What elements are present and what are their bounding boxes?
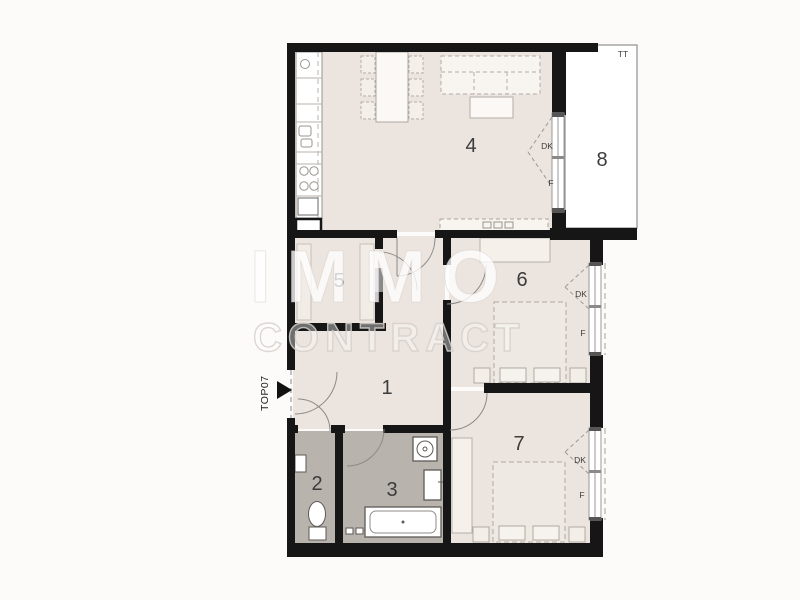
room-number-wc: 2 [311, 473, 322, 495]
wall-right-seg1 [590, 240, 603, 265]
coffee-table [470, 97, 513, 118]
floor-plan-drawing: TOP07 1 2 3 4 5 6 7 8 DK F DK F DK F TT [0, 0, 800, 600]
bathroom-sink-icon [424, 470, 441, 500]
room-number-bathroom: 3 [386, 479, 397, 501]
cooktop-burner-icon [310, 182, 318, 190]
washing-machine-dot-icon [423, 447, 427, 451]
wall-bed6-bottom-stub [443, 383, 449, 393]
wall-hall-bed6-lower [443, 300, 451, 395]
dining-set [361, 52, 423, 122]
wall-bath-bed7 [443, 395, 451, 543]
kitchen-light-icon [301, 60, 310, 69]
balcony-outline [565, 45, 637, 228]
pillow [499, 526, 525, 540]
window-label-f: F [580, 328, 585, 338]
wall-storage-stub [375, 238, 383, 249]
entrance-arrow-icon [277, 381, 292, 399]
wall-living-hall-right [435, 230, 553, 238]
wall-bottom [287, 543, 603, 557]
oven-icon [298, 198, 318, 215]
entrance-marker: TOP07 [259, 375, 292, 411]
nightstand [570, 368, 586, 383]
toilet-cistern-icon [309, 527, 326, 540]
dining-table [376, 52, 408, 122]
window-label-dk: DK [541, 141, 553, 151]
floor-plan-canvas: TOP07 1 2 3 4 5 6 7 8 DK F DK F DK F TT … [0, 0, 800, 600]
bath-mat-icon [356, 528, 363, 534]
room-number-bedroom7: 7 [513, 433, 524, 455]
room-number-bedroom6: 6 [516, 269, 527, 291]
terrace-label: TT [618, 49, 628, 59]
wardrobe [452, 438, 472, 533]
wall-wc-bath-divider [335, 431, 343, 543]
cooktop-burner-icon [300, 167, 308, 175]
room-number-hall: 1 [381, 377, 392, 399]
window-label-f: F [579, 490, 584, 500]
nightstand [474, 368, 490, 383]
wall-living-hall-left [287, 230, 397, 238]
room-number-living: 4 [465, 135, 476, 157]
pillow [500, 368, 526, 382]
window-label-dk: DK [575, 289, 587, 299]
wall-bed6-bed7 [484, 383, 603, 393]
wall-left-upper [287, 43, 295, 370]
room-number-storage: 5 [333, 270, 344, 292]
cooktop-burner-icon [310, 167, 318, 175]
storage-door-leaf [375, 268, 383, 292]
bath-mat-icon [346, 528, 353, 534]
wall-hall-wet-seg3 [383, 425, 443, 433]
shelf [360, 244, 374, 320]
shelf [297, 244, 311, 320]
kitchen-faucet-icon [301, 139, 312, 147]
unit-label: TOP07 [259, 375, 271, 411]
nightstand [473, 527, 489, 542]
sofa [441, 56, 540, 94]
wardrobe [480, 238, 550, 262]
pillow [534, 368, 560, 382]
hand-basin-icon [295, 455, 306, 472]
wall-right-seg3 [590, 518, 603, 545]
pillow [533, 526, 559, 540]
wall-hall-bed6-upper [443, 238, 451, 265]
window-label-dk: DK [574, 455, 586, 465]
toilet-icon [309, 502, 326, 527]
window-label-f: F [548, 178, 553, 188]
balcony-terrace [565, 45, 637, 228]
room-number-balcony: 8 [596, 149, 607, 171]
wall-hall-wet-seg1 [287, 425, 298, 433]
nightstand [569, 527, 585, 542]
wall-left-lower [287, 418, 295, 557]
wall-storage-bottom [287, 323, 386, 331]
wall-living-right-upper [552, 43, 566, 115]
wall-top [287, 43, 598, 52]
kitchen-sink-icon [299, 126, 311, 136]
cooktop-burner-icon [300, 182, 308, 190]
wall-balcony-bottom [550, 228, 637, 240]
kitchen-counter [296, 52, 322, 218]
